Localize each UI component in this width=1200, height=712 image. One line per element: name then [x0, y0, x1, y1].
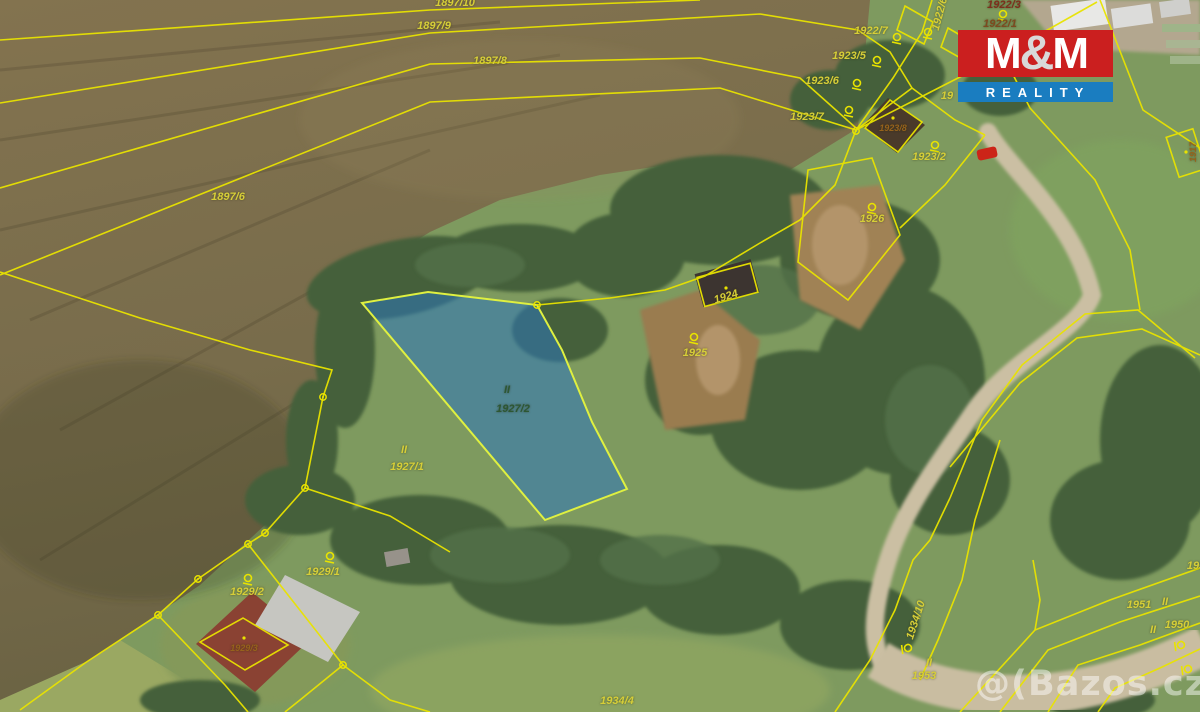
red-car	[976, 146, 998, 161]
map-stage: 1897/101897/91897/81897/61922/71922/6192…	[0, 0, 1200, 712]
omega-symbol	[998, 11, 1007, 22]
building-dot	[891, 116, 894, 119]
omega-symbol	[325, 553, 334, 564]
omega-symbol	[930, 142, 939, 153]
ampersand-glyph: &	[1020, 32, 1052, 76]
logo-reality: REALITY	[958, 82, 1113, 102]
bazos-watermark: @(Bazos.cz	[975, 664, 1200, 704]
building-dot	[1184, 150, 1187, 153]
mm-reality-logo: M&M REALITY	[958, 30, 1113, 102]
building-dot	[242, 636, 245, 639]
omega-symbol	[243, 575, 252, 586]
building-dot	[724, 286, 727, 289]
terrain-layer	[0, 0, 1200, 712]
aerial-cadastral-map	[0, 0, 1200, 712]
logo-mm: M&M	[958, 30, 1113, 77]
